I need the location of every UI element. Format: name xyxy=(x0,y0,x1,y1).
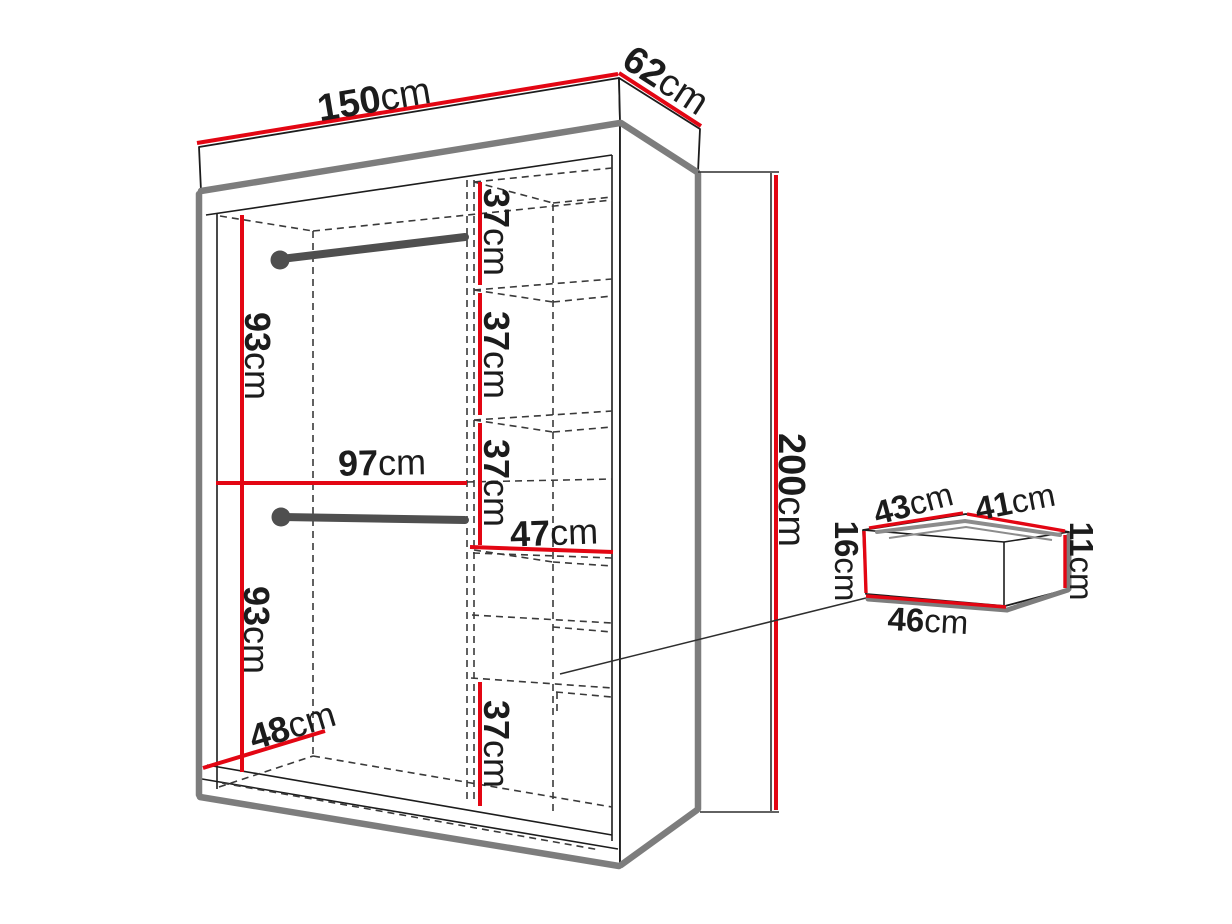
dim-label-lower-hanging: 93cm xyxy=(236,586,277,674)
hanging-rod-lower xyxy=(282,517,465,520)
dim-label-height: 200cm xyxy=(770,433,812,547)
dim-label-upper-hanging: 93cm xyxy=(237,312,278,400)
rod-end-cap-upper xyxy=(271,251,290,270)
dim-label-shelf-gap-1: 37cm xyxy=(476,188,517,276)
dim-label-drawer-top-width: 41cm xyxy=(972,476,1058,528)
dim-label-drawer-back-height: 11cm xyxy=(1063,522,1100,601)
diagram-canvas: 150cm 62cm 200cm 93cm 97cm 93cm 48cm 37c… xyxy=(0,0,1232,924)
wardrobe-dimension-diagram: 150cm 62cm 200cm 93cm 97cm 93cm 48cm 37c… xyxy=(0,0,1232,924)
dim-label-shelf-width: 47cm xyxy=(509,510,598,554)
dim-label-hanging-width: 97cm xyxy=(338,441,427,484)
right-side-face xyxy=(620,122,698,866)
dim-label-drawer-bottom-width: 46cm xyxy=(887,600,970,641)
dim-label-drawer-front-height: 16cm xyxy=(828,521,865,602)
dim-label-shelf-gap-4: 37cm xyxy=(476,700,517,788)
rod-end-cap-lower xyxy=(272,508,291,527)
dim-label-shelf-gap-2: 37cm xyxy=(476,311,517,399)
